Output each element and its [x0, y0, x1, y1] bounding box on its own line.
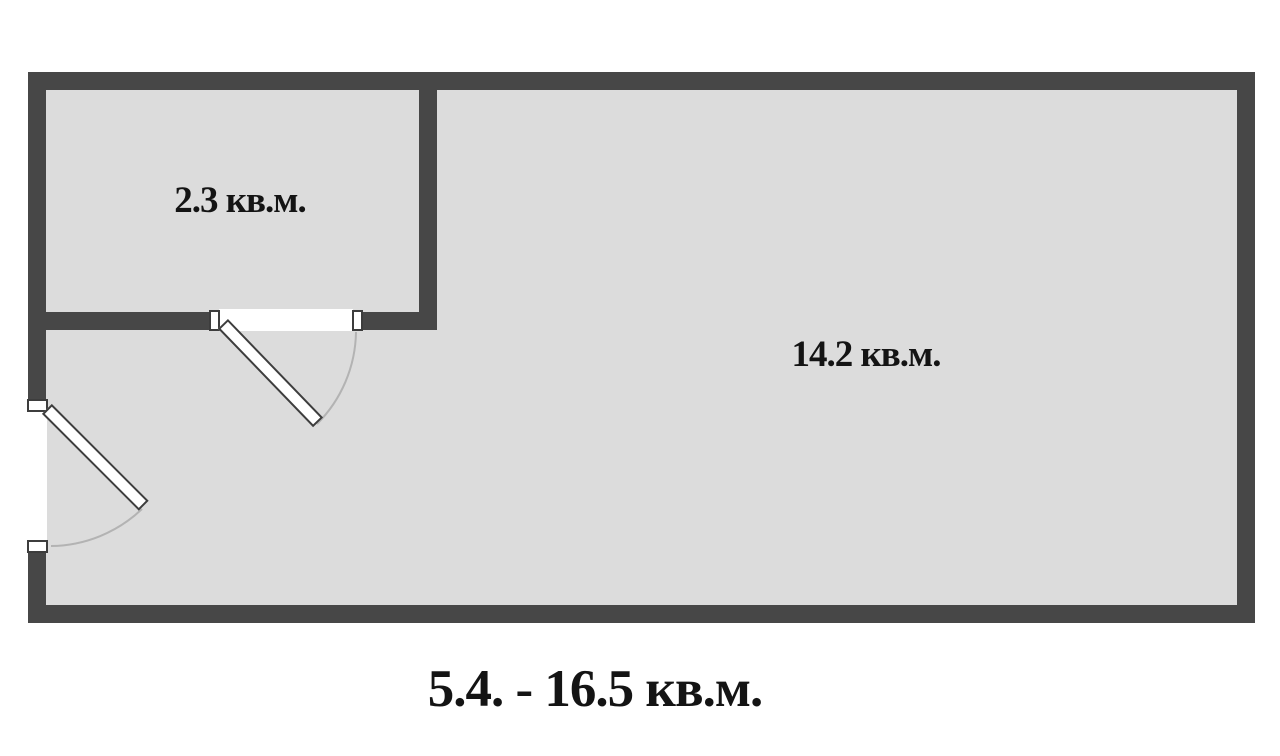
- room-small-area-label: 2.3 кв.м.: [130, 181, 350, 222]
- interior-wall-horizontal-right: [363, 312, 437, 330]
- door-opening-entrance: [27, 411, 47, 542]
- door-jamb: [352, 310, 363, 331]
- door-jamb: [27, 540, 48, 553]
- room-large-area-label: 14.2 кв.м.: [741, 335, 991, 376]
- plan-exterior-walls: [28, 72, 1255, 623]
- door-opening-between-rooms: [219, 309, 353, 331]
- plan-total-area-caption: 5.4. - 16.5 кв.м.: [295, 660, 895, 718]
- floor-plan-page: 2.3 кв.м. 14.2 кв.м. 5.4. - 16.5 кв.м.: [0, 0, 1280, 756]
- interior-wall-vertical: [419, 90, 437, 330]
- interior-wall-horizontal-left: [46, 312, 210, 330]
